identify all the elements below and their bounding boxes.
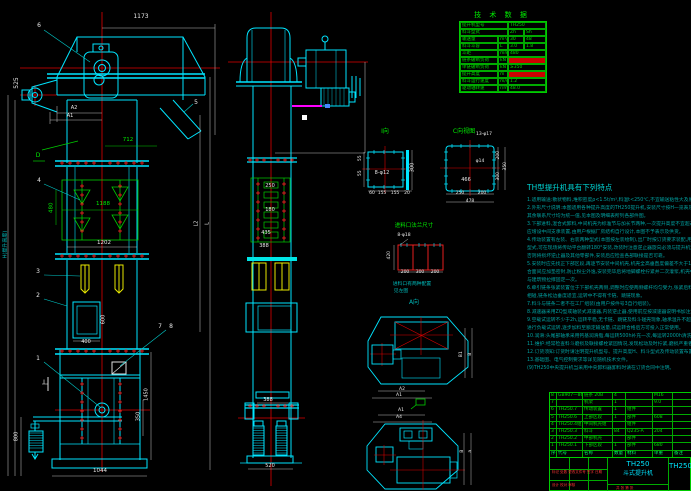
view-label-A: A向 <box>409 300 419 306</box>
bom-cell <box>653 436 673 443</box>
bom-cell: 1 <box>613 415 626 422</box>
titleblock-model: TH250 <box>608 460 668 468</box>
bom-cell <box>673 393 691 400</box>
dim-label: 200 <box>401 271 410 276</box>
tech-data-block: 技 术 数 据 提升机型号TH250料斗型式ZhSh输送量m³/h3048料斗斗… <box>459 10 547 93</box>
bom-cell <box>626 393 653 400</box>
detail-plan-head <box>368 317 472 398</box>
dim-label: L2 <box>195 221 200 227</box>
tech-cell: ≥350 <box>508 64 546 71</box>
dim-label: A2 <box>399 388 405 393</box>
dim-label: 478 <box>466 200 475 205</box>
tech-cell: m³/h <box>498 36 508 43</box>
bom-cell: 8 <box>550 393 557 400</box>
dim-label: 388 <box>259 244 269 249</box>
note-line: 进行负载试运转,逐步加料至额定输送量,试运转合格后方可投入正常使用。 <box>527 325 691 333</box>
note-line: 11.维护:经常检查料斗磨损及联接螺栓紧固情况,发现松动及时拧紧,磨损严重者应及… <box>527 341 691 349</box>
note-line: 10.润滑:头尾部轴承采用钙基润滑脂,每运转500h补充一次,每运转2000h清… <box>527 333 691 341</box>
dim-label: 1202 <box>97 241 111 247</box>
balloon-1: 1 <box>36 356 40 362</box>
spring-hatch <box>29 428 287 453</box>
front-chain-section <box>33 141 138 240</box>
bom-cell <box>673 415 691 422</box>
bom-cell: M16 <box>653 393 673 400</box>
note-line: 4.传动装置有左装、右装两种型式(本图按左装绘制),出厂时按订货要求装配,用户如… <box>527 237 691 245</box>
dim-label: 200 <box>478 192 487 197</box>
bom-cell: 680 <box>653 443 673 450</box>
detail-title-inlet: 进料口法兰尺寸 <box>395 224 434 230</box>
bom-cell: 7 <box>550 400 557 407</box>
bom-cell: TH250.3 <box>557 429 583 436</box>
bom-cell <box>673 436 691 443</box>
dim-label: 1450 <box>145 388 150 401</box>
bom-cell <box>653 407 673 414</box>
bom-cell <box>673 443 691 450</box>
tech-cell: 48.0 <box>508 85 546 92</box>
bom-cell: 链条 20B <box>583 393 613 400</box>
bom-cell <box>613 422 626 429</box>
bom-cell: 5 <box>550 415 557 422</box>
dim-label: 1173 <box>133 14 148 20</box>
view-label-I: I向 <box>381 129 389 135</box>
dim-label: 350 <box>137 412 142 422</box>
dim-label: A1 <box>398 409 404 414</box>
dim-label: 466 <box>461 178 471 183</box>
dim-label: 525 <box>14 77 20 88</box>
tech-cell: 1.8 <box>524 43 546 50</box>
cad-drawing-viewport[interactable]: 11736525A2A15D71244801188120232600784001… <box>0 0 691 491</box>
bom-cell <box>613 436 626 443</box>
dim-label: 155 <box>391 192 400 197</box>
note-line: 合面间应加垫密封,防止粉尘外逸,安装完毕后将地脚螺栓拧紧并二次灌浆,机壳中部每隔… <box>527 269 691 277</box>
bom-cell: 1 <box>613 443 626 450</box>
tech-cell: mm <box>498 50 508 57</box>
dim-label: 600 <box>102 315 107 325</box>
dim-label: 见左图 <box>394 290 408 295</box>
bom-cell: 组件 <box>626 422 653 429</box>
white-marker <box>302 115 307 120</box>
balloon-2: 2 <box>36 293 40 299</box>
detail-inlet <box>394 239 443 272</box>
balloon-3: 3 <box>36 269 40 275</box>
bom-cell: 1 <box>613 400 626 407</box>
dim-label: 55 <box>359 170 364 176</box>
bom-cell: Q235-A <box>626 429 653 436</box>
dim-label: 435 <box>261 231 271 236</box>
dim-label: 60 <box>369 192 375 197</box>
note-line: 1.适用输送:散状物料,堆积密度ρ<1.5t/m³,料温t<250℃,不宜输送粘… <box>527 197 691 205</box>
dim-label: I <box>43 380 45 386</box>
titleblock-sign-line: 设计 校对 审核 <box>552 483 575 488</box>
bom-cell: TH250.2 <box>557 436 583 443</box>
note-line: 应增设中间支承装置,由用户根据厂房结构自行设计,本图不予表示及供货。 <box>527 229 691 237</box>
note-line: 9.空载试运转不少于2h,运转平稳,无卡链、跳链及料斗碰壳现象,轴承温升不超过2… <box>527 317 691 325</box>
bom-cell <box>626 400 653 407</box>
tech-cell: 料斗型式 <box>460 29 508 36</box>
dim-label: B1 <box>460 351 465 357</box>
bom-cell: TH250.6 <box>557 415 583 422</box>
bom-cell: 传动装置 <box>583 407 613 414</box>
side-head <box>236 28 360 106</box>
dim-label: 400 <box>81 340 91 345</box>
dim-label: A4 <box>396 416 402 421</box>
note-line: 其余联系尺寸均为统一值,见本图及明细表所列各部件图。 <box>527 213 691 221</box>
front-dims <box>8 24 215 476</box>
tech-cell: 30 <box>508 36 524 43</box>
tech-cell: TH250 <box>508 22 546 29</box>
notes-heading: TH型提升机具有下列特点 <box>527 182 691 193</box>
bom-cell: 料斗 <box>583 429 613 436</box>
note-line: 否则将损坏逆止器及其他零部件,安装后应检查各部联接是否可靠。 <box>527 253 691 261</box>
note-line: 与建筑物拉撑固定一次。 <box>527 277 691 285</box>
bom-cell: 1 <box>613 407 626 414</box>
tech-cell: m <box>498 71 508 78</box>
side-buckets <box>252 263 289 290</box>
tech-cell: 提升高度 <box>460 71 498 78</box>
tech-cell: 料斗斗容 <box>460 43 498 50</box>
bom-cell: 上部区段 <box>583 415 613 422</box>
dim-label: 520 <box>265 464 275 469</box>
tech-cell <box>508 71 546 78</box>
tech-cell: 480 <box>508 50 546 57</box>
note-line: 5.安装时应先找正下部区段,再逐节安装中间机壳,机壳全高垂直度偏差不大于10mm… <box>527 261 691 269</box>
tech-cell: 3.0 <box>508 43 524 50</box>
dim-label: φ14 <box>476 160 485 165</box>
balloon-7: 7 <box>158 324 162 330</box>
note-line: 型式,可在现场将传动平台翻转180°安装,改装时注意逆止器旋向必须与提升机运转方… <box>527 245 691 253</box>
tech-cell: L <box>498 43 508 50</box>
bom-cell: TH250.1 <box>557 443 583 450</box>
front-boot <box>29 350 147 468</box>
dim-label: 712 <box>123 138 134 144</box>
titleblock-drawing-name: 斗式提升机 <box>608 470 668 477</box>
balloon-8: 8 <box>169 324 173 330</box>
note-line: 6.牵引链条张紧装置位于下部机壳两侧,调整时应使两侧螺杆均匀受力,张紧后料斗不得… <box>527 285 691 293</box>
tech-cell: Zh <box>508 29 524 36</box>
dim-label: 800 <box>15 432 20 442</box>
balloon-D: D <box>36 153 41 159</box>
bom-cell: 9.0 <box>653 400 673 407</box>
bom-cell: GB907—86 <box>557 393 583 400</box>
tech-cell <box>508 57 546 64</box>
bom-cell: TH250.7 <box>557 407 583 414</box>
dim-label: 进料口有两种配置 <box>393 283 431 288</box>
bom-cell <box>673 429 691 436</box>
balloon-5: 5 <box>194 100 198 106</box>
dim-label: a <box>469 450 474 453</box>
tech-cell: 1.2 <box>508 78 546 85</box>
bom-cell: 608 <box>653 415 673 422</box>
bom-cell: 6 <box>550 407 557 414</box>
tech-cell: 料斗运行速度 <box>460 78 498 85</box>
bom-cell <box>673 400 691 407</box>
dim-label: 300 <box>416 271 425 276</box>
dim-label: 55 <box>359 155 364 161</box>
dim-label: A1 <box>67 114 74 119</box>
bom-cell: 4 <box>613 393 626 400</box>
detail-plan-boot <box>367 399 471 490</box>
tech-data-table: 提升机型号TH250料斗型式ZhSh输送量m³/h3048料斗斗容L3.01.8… <box>459 21 547 93</box>
tech-cell: 斗距 <box>460 50 498 57</box>
datum-symbol <box>411 399 425 409</box>
blue-marker <box>325 104 330 108</box>
bom-cell: 1 <box>550 443 557 450</box>
dim-label: 350 <box>504 162 509 171</box>
note-line: 8.减速器采用ZQ型或轴装式减速器,内装逆止器,使用前应按减速器说明书加注润滑油… <box>527 309 691 317</box>
bom-cell: 3 <box>550 429 557 436</box>
titleblock-sheet-line: 共 张 第 张 <box>616 486 633 491</box>
dim-label: H(提升高度) <box>4 231 9 259</box>
dim-label: B <box>469 353 474 356</box>
tech-cell: 提升机型号 <box>460 22 508 29</box>
bom-cell: 中部机壳 <box>583 436 613 443</box>
note-line: 3.下部进料,混合式卸料,中间机壳为标准节与加长节两种,一次提升高度不宜超过40… <box>527 221 691 229</box>
dim-label: 480 <box>49 203 55 214</box>
note-line: 7.料斗与链条二者不在工厂组装(由用户按件号3自行组装)。 <box>527 301 691 309</box>
bom-cell: 机架 <box>583 400 613 407</box>
notes-lines: 1.适用输送:散状物料,堆积密度ρ<1.5t/m³,料温t<250℃,不宜输送粘… <box>527 197 691 373</box>
bom-cell: 204 <box>653 429 673 436</box>
bom-cell: TH250.4组 <box>557 422 583 429</box>
bom-cell <box>653 422 673 429</box>
bom-cell: 部件 <box>626 415 653 422</box>
tech-cell: r/min <box>498 85 508 92</box>
dim-label: 250 <box>265 184 275 189</box>
bom-cell <box>673 407 691 414</box>
dim-label: B <box>461 450 466 453</box>
balloon-4: 4 <box>37 178 41 184</box>
tech-cell: 驱动轴转速 <box>460 85 498 92</box>
dim-label: 8-φ12 <box>375 171 390 176</box>
note-line: (9)TH250中央提升机当采用中央卸料器卸料时请在订货合同中注明。 <box>527 365 691 373</box>
tech-data-title: 技 术 数 据 <box>459 10 545 20</box>
bom-cell: 中间机壳组 <box>583 422 613 429</box>
bom-cell <box>557 400 583 407</box>
tech-cell: kN <box>498 57 508 64</box>
dim-label: 155 <box>378 192 387 197</box>
dim-label: L <box>206 222 211 225</box>
bom-cell: 部件 <box>626 436 653 443</box>
bom-table: 8GB907—86链条 20B4M167机架19.06TH250.7传动装置1组… <box>549 392 691 458</box>
dim-label: 180 <box>265 208 275 213</box>
note-line: 2.外形尺寸说明:本图适用各种提升高度的TH250提升机,安装尺寸按H一览表及订… <box>527 205 691 213</box>
titleblock-drawing-number: TH250 <box>669 462 691 470</box>
bom-cell: 84 <box>613 429 626 436</box>
bom-cell <box>673 422 691 429</box>
dim-label: 13-φ17 <box>476 133 492 138</box>
dim-label: 420 <box>388 251 393 260</box>
dim-label: A2 <box>71 106 78 111</box>
note-line: 12.订货须知:订货时请注明提升机型号、提升高度H、料斗型式及传动装置布置型式。 <box>527 349 691 357</box>
dim-label: 250 <box>456 192 465 197</box>
note-line: 13.基础图、电气控制要求等详见随机技术文件。 <box>527 357 691 365</box>
notes-block: TH型提升机具有下列特点 1.适用输送:散状物料,堆积密度ρ<1.5t/m³,料… <box>527 182 691 373</box>
dim-label: 388 <box>263 398 273 403</box>
dim-label: A1 <box>396 394 402 399</box>
bom-cell: 2 <box>550 436 557 443</box>
note-line: 相碰,链条松边垂度适宜,运转中不得有卡链、跳链现象。 <box>527 293 691 301</box>
front-head <box>22 37 205 139</box>
dim-label: 1188 <box>96 202 110 208</box>
tech-cell: Sh <box>524 29 546 36</box>
view-label-C: C向视图 <box>453 129 475 135</box>
dim-label: 200 <box>431 271 440 276</box>
dim-label: 8-φ18 <box>397 234 410 239</box>
bom-cell: 组件 <box>626 407 653 414</box>
titleblock-rev-line: 标记 处数 更改文件号 签字 日期 <box>552 470 602 475</box>
title-block: TH250 斗式提升机 TH250 标记 处数 更改文件号 签字 日期 设计 校… <box>549 457 691 491</box>
dim-label: 300 <box>411 163 416 173</box>
dim-label: 20 <box>404 192 410 197</box>
tech-cell: m/s <box>498 78 508 85</box>
bom-cell: 4 <box>550 422 557 429</box>
dim-label: 1044 <box>93 469 107 475</box>
dim-label: 300 <box>497 172 502 181</box>
bom-cell: 下部区段 <box>583 443 613 450</box>
tech-cell: 链条破断负荷 <box>460 57 498 64</box>
bom-cell: 部件 <box>626 443 653 450</box>
balloon-6: 6 <box>37 23 41 29</box>
dim-label: 200 <box>497 151 502 160</box>
tech-cell: 输送量 <box>460 36 498 43</box>
tech-cell: kN <box>498 64 508 71</box>
tech-cell: 单链破断负荷 <box>460 64 498 71</box>
tech-cell: 48 <box>524 36 546 43</box>
